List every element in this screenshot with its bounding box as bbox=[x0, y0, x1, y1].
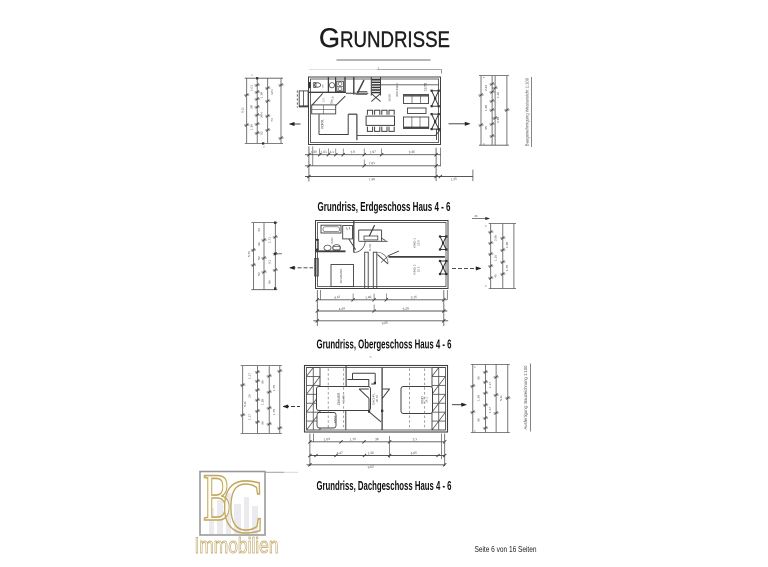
svg-text:52: 52 bbox=[257, 272, 261, 276]
svg-text:26: 26 bbox=[248, 394, 252, 398]
svg-text:Immobilien: Immobilien bbox=[195, 533, 279, 558]
svg-text:1.16: 1.16 bbox=[494, 255, 498, 261]
svg-text:74: 74 bbox=[270, 118, 274, 122]
svg-text:11½: 11½ bbox=[270, 89, 274, 95]
svg-text:Grundriss, Obergeschoss Haus 4: Grundriss, Obergeschoss Haus 4 - 6 bbox=[317, 336, 452, 351]
svg-text:14.1: 14.1 bbox=[425, 397, 429, 403]
svg-text:SCHRANK: SCHRANK bbox=[339, 269, 343, 284]
svg-text:G: G bbox=[319, 23, 340, 53]
svg-text:1.38: 1.38 bbox=[260, 92, 264, 98]
svg-text:19.58: 19.58 bbox=[388, 94, 392, 102]
svg-text:~: ~ bbox=[369, 355, 372, 360]
svg-text:15.9: 15.9 bbox=[417, 240, 421, 246]
svg-text:1.38: 1.38 bbox=[261, 399, 265, 405]
svg-text:2.66: 2.66 bbox=[494, 235, 498, 241]
svg-text:38ⁱ: 38ⁱ bbox=[248, 105, 253, 109]
svg-text:1.38: 1.38 bbox=[477, 395, 481, 401]
svg-text:86: 86 bbox=[268, 280, 272, 284]
svg-text:96: 96 bbox=[257, 242, 261, 246]
svg-text:ABST: ABST bbox=[333, 415, 337, 423]
svg-text:5.11: 5.11 bbox=[499, 395, 503, 401]
svg-text:VORR.: VORR. bbox=[321, 119, 325, 129]
svg-text:16.98: 16.98 bbox=[342, 395, 346, 403]
svg-text:RUNDRISSE: RUNDRISSE bbox=[340, 27, 450, 52]
svg-text:96: 96 bbox=[477, 376, 481, 380]
svg-text:3.1: 3.1 bbox=[268, 260, 272, 265]
svg-text:2.9: 2.9 bbox=[350, 150, 355, 155]
svg-text:ZIMMER: ZIMMER bbox=[337, 392, 341, 405]
svg-text:52: 52 bbox=[257, 256, 261, 260]
svg-text:1.36: 1.36 bbox=[249, 124, 253, 130]
svg-text:BAD: BAD bbox=[330, 238, 334, 244]
svg-text:20.76: 20.76 bbox=[375, 395, 379, 402]
svg-text:Grundriss, Erdgeschoss Haus 4: Grundriss, Erdgeschoss Haus 4 - 6 bbox=[318, 199, 451, 214]
svg-text:35: 35 bbox=[484, 126, 488, 130]
svg-text:5.11: 5.11 bbox=[243, 401, 247, 407]
svg-text:Baugenehmigung Westansicht 1:1: Baugenehmigung Westansicht 1:100 bbox=[525, 77, 530, 146]
svg-text:Ausfertigung: Bauzeichnung 1:1: Ausfertigung: Bauzeichnung 1:100 bbox=[523, 365, 528, 430]
svg-text:1.78: 1.78 bbox=[505, 265, 509, 271]
svg-text:1.17: 1.17 bbox=[488, 382, 492, 388]
svg-text:3.1: 3.1 bbox=[412, 437, 417, 442]
svg-text:2.63: 2.63 bbox=[484, 85, 488, 91]
svg-text:2.49: 2.49 bbox=[496, 117, 500, 123]
svg-text:FLUR: FLUR bbox=[368, 244, 372, 252]
svg-text:5.70: 5.70 bbox=[247, 251, 251, 257]
svg-text:96: 96 bbox=[261, 421, 265, 425]
svg-text:1.17: 1.17 bbox=[248, 414, 252, 420]
svg-text:5.11: 5.11 bbox=[241, 107, 245, 113]
svg-text:96: 96 bbox=[477, 418, 481, 422]
svg-text:2.5: 2.5 bbox=[322, 98, 326, 102]
svg-text:4.1: 4.1 bbox=[329, 150, 334, 155]
svg-text:43: 43 bbox=[257, 228, 261, 232]
svg-text:15.3: 15.3 bbox=[417, 266, 421, 272]
svg-text:1.38: 1.38 bbox=[484, 105, 488, 111]
svg-text:19.58: 19.58 bbox=[424, 83, 428, 91]
svg-text:1.01: 1.01 bbox=[249, 85, 253, 91]
svg-text:36½: 36½ bbox=[260, 112, 264, 118]
svg-text:1.16: 1.16 bbox=[496, 92, 500, 98]
svg-text:1.38: 1.38 bbox=[505, 242, 509, 248]
svg-text:1.71: 1.71 bbox=[268, 237, 272, 243]
svg-text:52: 52 bbox=[260, 131, 264, 135]
svg-text:1.17: 1.17 bbox=[488, 407, 492, 413]
svg-text:40: 40 bbox=[494, 274, 498, 278]
svg-text:1.75: 1.75 bbox=[272, 385, 276, 391]
svg-text:1.75: 1.75 bbox=[272, 409, 276, 415]
svg-text:1.17: 1.17 bbox=[248, 373, 252, 379]
svg-text:Seite 6 von 16 Seiten: Seite 6 von 16 Seiten bbox=[475, 544, 537, 554]
svg-text:26: 26 bbox=[474, 214, 478, 218]
svg-text:Grundriss, Dachgeschoss Haus 4: Grundriss, Dachgeschoss Haus 4 - 6 bbox=[317, 478, 452, 493]
svg-text:WOHNEN: WOHNEN bbox=[395, 83, 399, 97]
svg-text:96: 96 bbox=[261, 380, 265, 384]
